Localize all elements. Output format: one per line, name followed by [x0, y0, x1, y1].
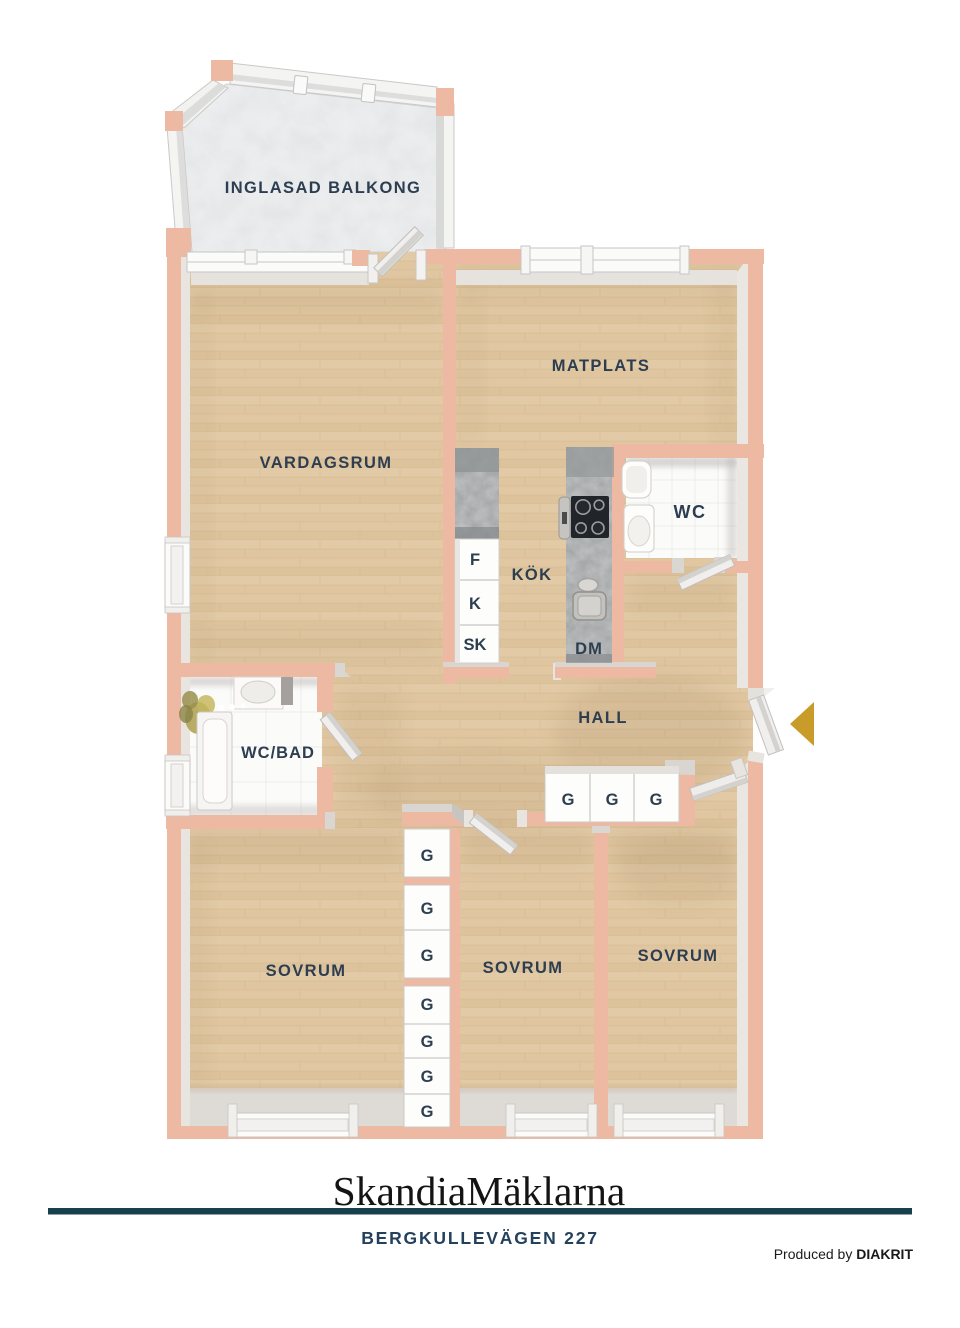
svg-text:SOVRUM: SOVRUM [638, 947, 719, 965]
svg-text:SK: SK [464, 636, 487, 654]
svg-text:G: G [421, 847, 434, 865]
svg-text:G: G [421, 1033, 434, 1051]
svg-text:WC: WC [674, 502, 707, 522]
svg-text:F: F [470, 551, 480, 569]
svg-text:G: G [421, 1103, 434, 1121]
svg-text:HALL: HALL [578, 709, 628, 727]
svg-text:INGLASAD BALKONG: INGLASAD BALKONG [225, 179, 422, 197]
svg-text:G: G [421, 900, 434, 918]
svg-text:KÖK: KÖK [512, 565, 553, 584]
svg-text:G: G [650, 791, 663, 809]
svg-text:VARDAGSRUM: VARDAGSRUM [260, 454, 393, 472]
svg-text:Produced by DIAKRIT: Produced by DIAKRIT [774, 1246, 914, 1262]
svg-text:G: G [562, 791, 575, 809]
svg-text:G: G [606, 791, 619, 809]
svg-text:WC/BAD: WC/BAD [241, 744, 315, 762]
svg-text:K: K [469, 595, 481, 613]
svg-text:MATPLATS: MATPLATS [552, 357, 651, 375]
svg-text:G: G [421, 947, 434, 965]
svg-text:SOVRUM: SOVRUM [266, 962, 347, 980]
svg-text:BERGKULLEVÄGEN 227: BERGKULLEVÄGEN 227 [361, 1228, 599, 1248]
svg-text:SOVRUM: SOVRUM [483, 959, 564, 977]
svg-text:G: G [421, 996, 434, 1014]
svg-text:SkandiaMäklarna: SkandiaMäklarna [333, 1168, 626, 1214]
svg-text:DM: DM [575, 640, 603, 658]
svg-text:G: G [421, 1068, 434, 1086]
